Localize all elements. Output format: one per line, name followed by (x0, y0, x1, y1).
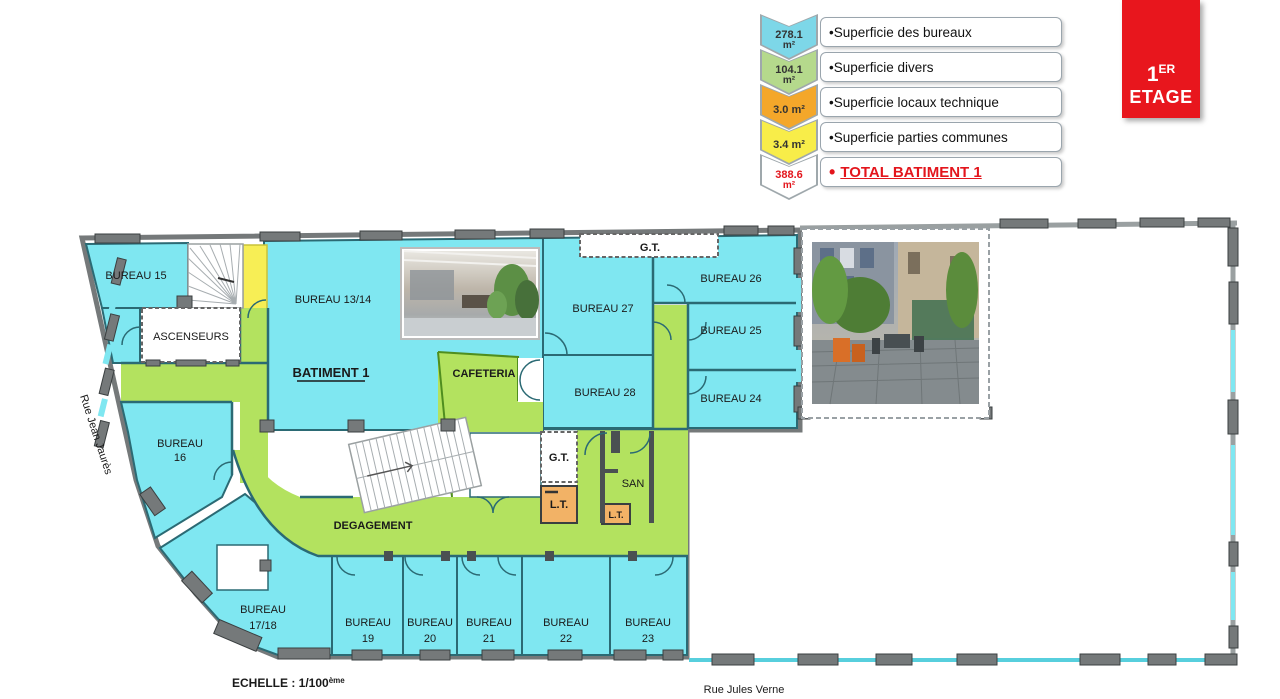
floor-badge-number: 1ER (1147, 58, 1175, 86)
label-gt-mid: G.T. (549, 452, 569, 464)
legend-value-communes: 3.4 m² (773, 140, 805, 151)
legend-total-label: TOTAL BATIMENT 1 (840, 164, 981, 181)
street-rue-jules-verne: Rue Jules Verne (704, 684, 785, 696)
area-parties-communes (243, 245, 267, 311)
label-lt-2: L.T. (609, 510, 624, 520)
legend-row-technique: •Superficie locaux technique (820, 87, 1062, 117)
label-bureau-13-14: BUREAU 13/14 (295, 294, 371, 306)
floor-plan: BUREAU 15 BUREAU 13/14 BATIMENT 1 ASCENS… (0, 0, 1280, 699)
floor-badge: 1ER ETAGE (1122, 0, 1200, 118)
legend-row-divers: •Superficie divers (820, 52, 1062, 82)
label-san: SAN (622, 478, 645, 490)
label-gt-top: G.T. (640, 242, 660, 254)
scale-label: ECHELLE : 1/100ème (232, 676, 345, 690)
label-bureau-15: BUREAU 15 (105, 270, 166, 282)
label-batiment-1: BATIMENT 1 (292, 365, 369, 380)
legend-row-total: • TOTAL BATIMENT 1 (820, 157, 1062, 187)
wall-pier (260, 420, 274, 432)
corridor-right (653, 305, 688, 556)
wall-pier (348, 420, 364, 432)
legend: 278.1 m² 104.1 m² 3.0 m² 3.4 m² 388.6 m²… (756, 14, 1068, 206)
legend-row-communes: •Superficie parties communes (820, 122, 1062, 152)
legend-value-technique: 3.0 m² (773, 105, 805, 116)
hall-wedge (470, 433, 541, 497)
floor-badge-word: ETAGE (1129, 86, 1192, 108)
label-bureau-25: BUREAU 25 (700, 325, 761, 337)
label-ascenseurs: ASCENSEURS (153, 331, 229, 343)
wall-pier (441, 419, 455, 431)
label-bureau-28: BUREAU 28 (574, 387, 635, 399)
label-lt-1: L.T. (550, 499, 568, 511)
label-bureau-27: BUREAU 27 (572, 303, 633, 315)
legend-row-bureaux: •Superficie des bureaux (820, 17, 1062, 47)
label-degagement: DEGAGEMENT (334, 520, 413, 532)
terrace-photo (802, 229, 989, 418)
label-cafeteria: CAFETERIA (453, 368, 516, 380)
street-rue-jean-jaures: Rue Jean Jaurès (77, 393, 114, 476)
label-bureau-26: BUREAU 26 (700, 273, 761, 285)
label-bureau-24: BUREAU 24 (700, 393, 761, 405)
cafeteria-photo (401, 248, 539, 339)
